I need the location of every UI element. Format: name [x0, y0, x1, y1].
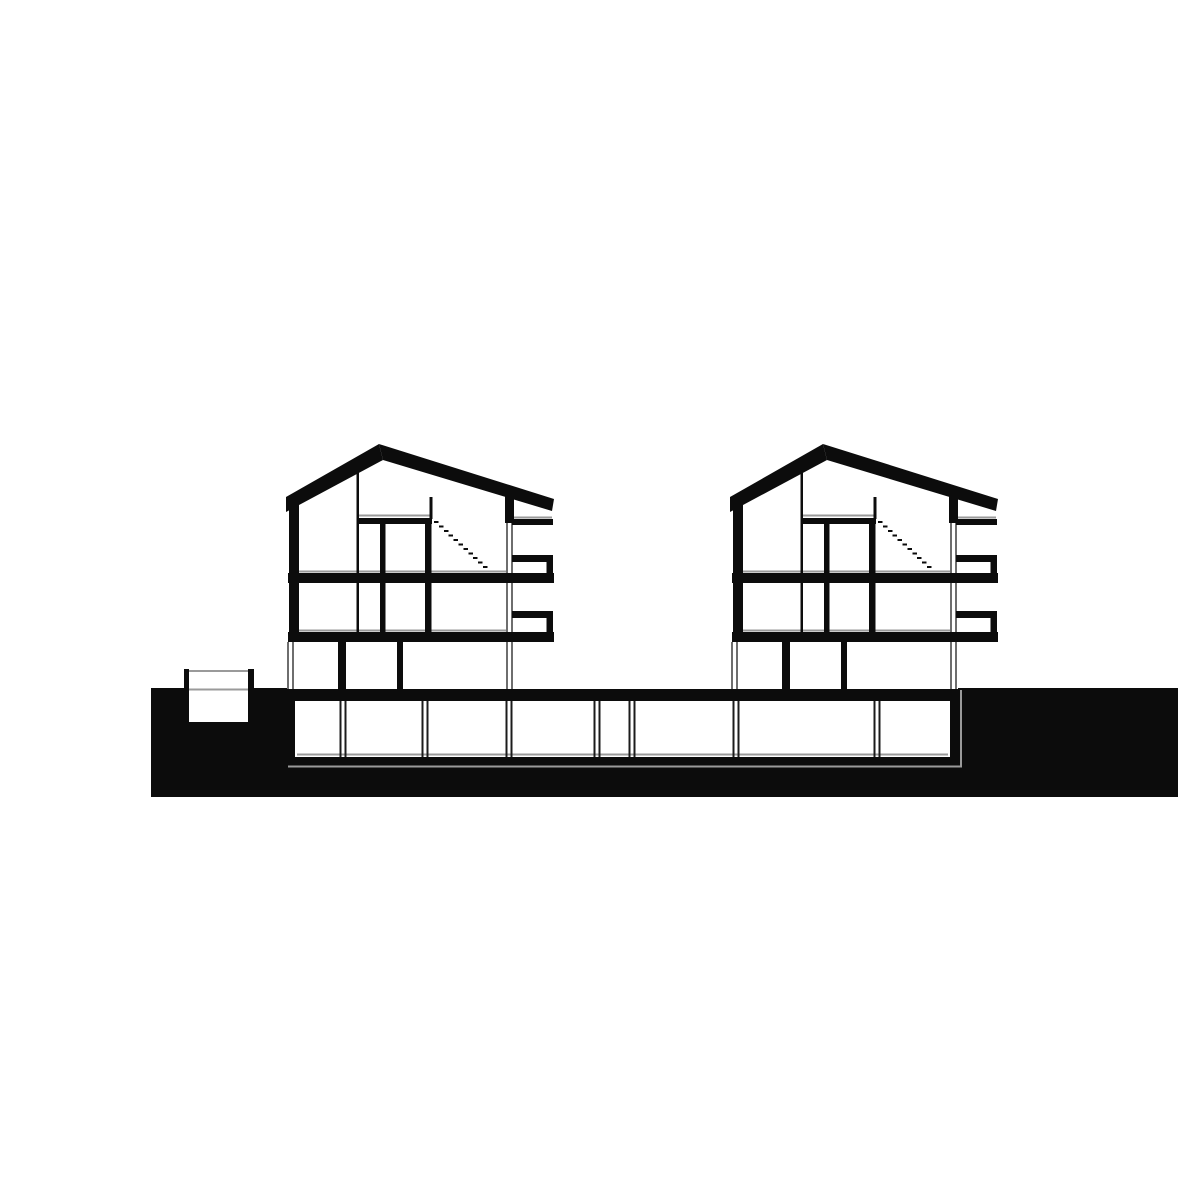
stair-dashed-line	[917, 557, 922, 559]
floor-slab-ground	[732, 632, 998, 642]
balcony-rail-lower-cap	[512, 611, 547, 618]
basement-interior	[295, 701, 950, 757]
basement-wall-right	[950, 701, 958, 757]
stair-dashed-line	[449, 535, 454, 537]
two-house-section-drawing	[0, 0, 1181, 1181]
floor-slab-upper	[732, 573, 998, 583]
stair-dashed-line	[888, 530, 893, 532]
floor-slab-ground	[288, 632, 554, 642]
ground-mass-below-basement	[288, 757, 958, 797]
attic-terrace-slab	[512, 519, 553, 525]
section-drawing-page	[0, 0, 1181, 1181]
garden-level-wall-b	[397, 642, 403, 689]
basement-ceiling-slab	[288, 689, 958, 701]
interior-wall-thin	[357, 468, 360, 633]
stair-dashed-line	[883, 526, 888, 528]
interior-wall-a	[824, 524, 830, 632]
stair-dashed-line	[483, 566, 488, 568]
stair-guard-wall	[430, 497, 433, 519]
balcony-rail-lower-cap	[956, 611, 991, 618]
lightwell-wall-left	[184, 669, 189, 722]
floor-slab-upper	[288, 573, 554, 583]
stair-dashed-line	[463, 548, 468, 550]
stair-dashed-line	[893, 535, 898, 537]
attic-terrace-wall	[949, 492, 958, 523]
stair-dashed-line	[927, 566, 932, 568]
garden-level-wall-b	[841, 642, 847, 689]
lightwell-wall-right	[248, 669, 254, 722]
attic-floor-slab	[357, 518, 432, 524]
stair-dashed-line	[444, 530, 449, 532]
balcony-rail-upper-cap	[956, 555, 991, 562]
stair-dashed-line	[473, 557, 478, 559]
interior-wall-thin	[801, 468, 804, 633]
attic-floor-slab	[801, 518, 876, 524]
stair-dashed-line	[903, 544, 908, 546]
stair-dashed-line	[907, 548, 912, 550]
interior-wall-b	[869, 524, 876, 632]
exterior-wall-left	[289, 500, 299, 642]
stair-dashed-line	[439, 526, 444, 528]
stair-guard-wall	[874, 497, 877, 519]
exterior-wall-left	[733, 500, 743, 642]
stair-dashed-line	[922, 562, 927, 564]
interior-wall-a	[380, 524, 386, 632]
lightwell-interior	[189, 670, 248, 722]
attic-terrace-wall	[505, 492, 514, 523]
stair-dashed-line	[912, 553, 917, 555]
paper-background	[0, 0, 1181, 1181]
stair-dashed-line	[878, 521, 883, 523]
interior-wall-b	[425, 524, 432, 632]
basement-wall-left	[288, 701, 295, 757]
stair-dashed-line	[468, 553, 473, 555]
stair-dashed-line	[459, 544, 464, 546]
attic-terrace-slab	[956, 519, 997, 525]
balcony-rail-upper-cap	[512, 555, 547, 562]
stair-dashed-line	[898, 539, 903, 541]
garden-level-wall-a	[782, 642, 790, 689]
stair-dashed-line	[454, 539, 459, 541]
stair-dashed-line	[434, 521, 439, 523]
stair-dashed-line	[478, 562, 483, 564]
garden-level-wall-a	[338, 642, 346, 689]
ground-mass-right	[958, 688, 1178, 797]
